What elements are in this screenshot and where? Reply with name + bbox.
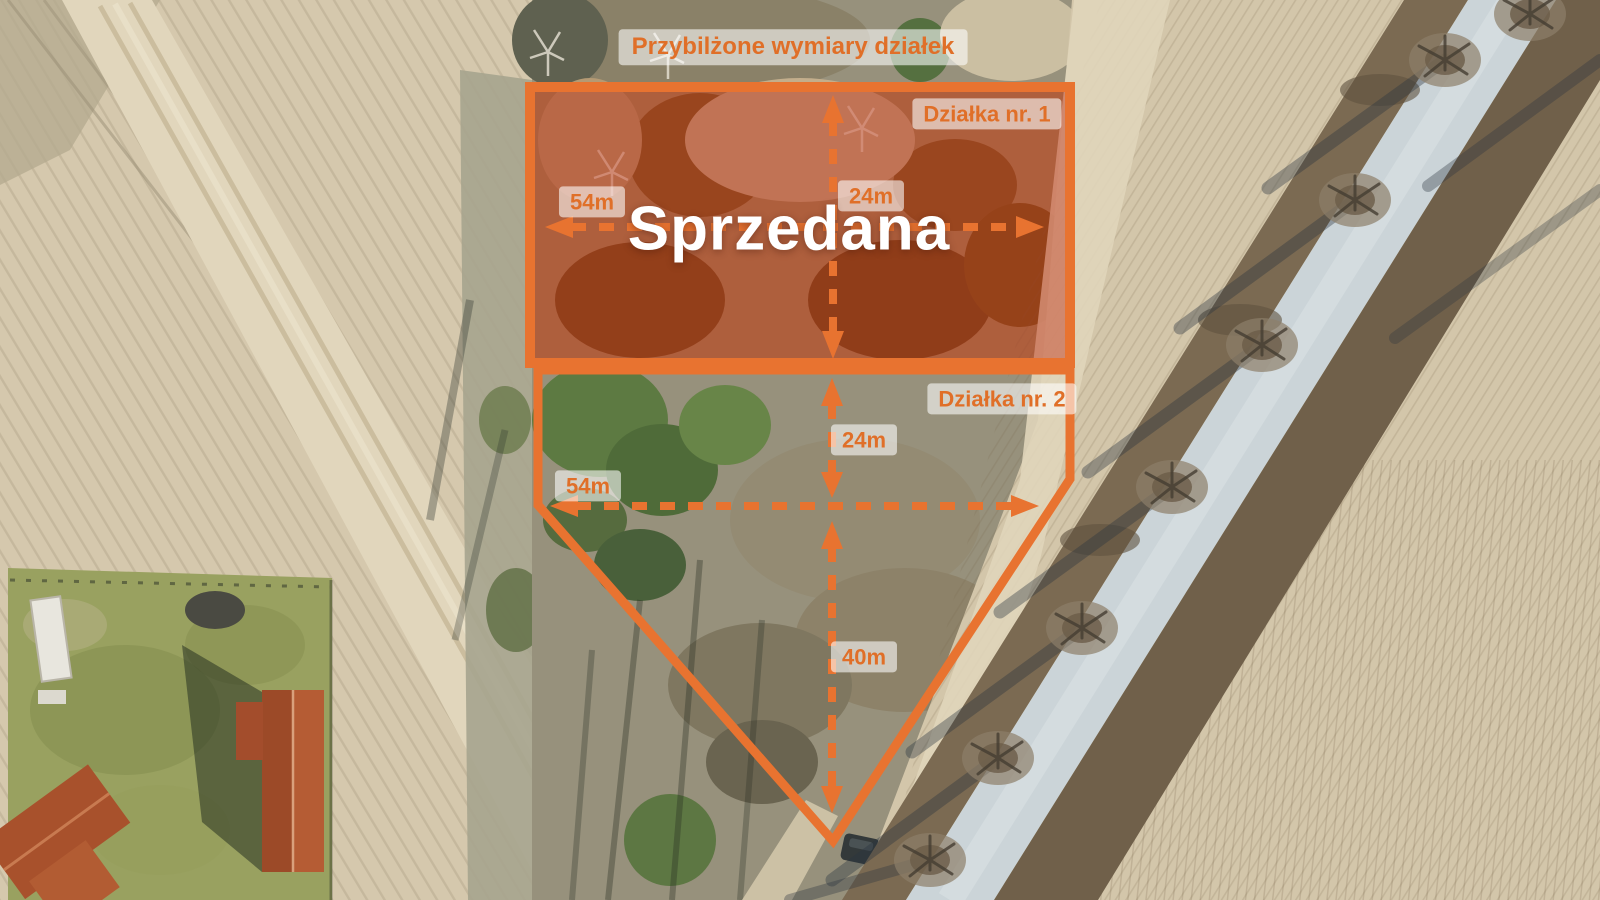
plot2-width-label: 54m xyxy=(555,470,621,501)
plot2-name-label: Działka nr. 2 xyxy=(927,383,1076,414)
plot1-status-label: Sprzedana xyxy=(628,194,951,265)
plot1-width-label: 54m xyxy=(559,186,625,217)
woodpile xyxy=(185,591,245,629)
approx-dimensions-title: Przybilżone wymiary działek xyxy=(619,29,968,65)
shed-white xyxy=(38,690,66,704)
aerial-photo-scene xyxy=(0,0,1600,900)
aerial-photo: Przybilżone wymiary działek Działka nr. … xyxy=(0,0,1600,900)
farmstead xyxy=(0,568,332,900)
plot2-depth-upper-label: 24m xyxy=(831,424,897,455)
plot1-name-label: Działka nr. 1 xyxy=(912,98,1061,129)
plot2-depth-lower-label: 40m xyxy=(831,641,897,672)
